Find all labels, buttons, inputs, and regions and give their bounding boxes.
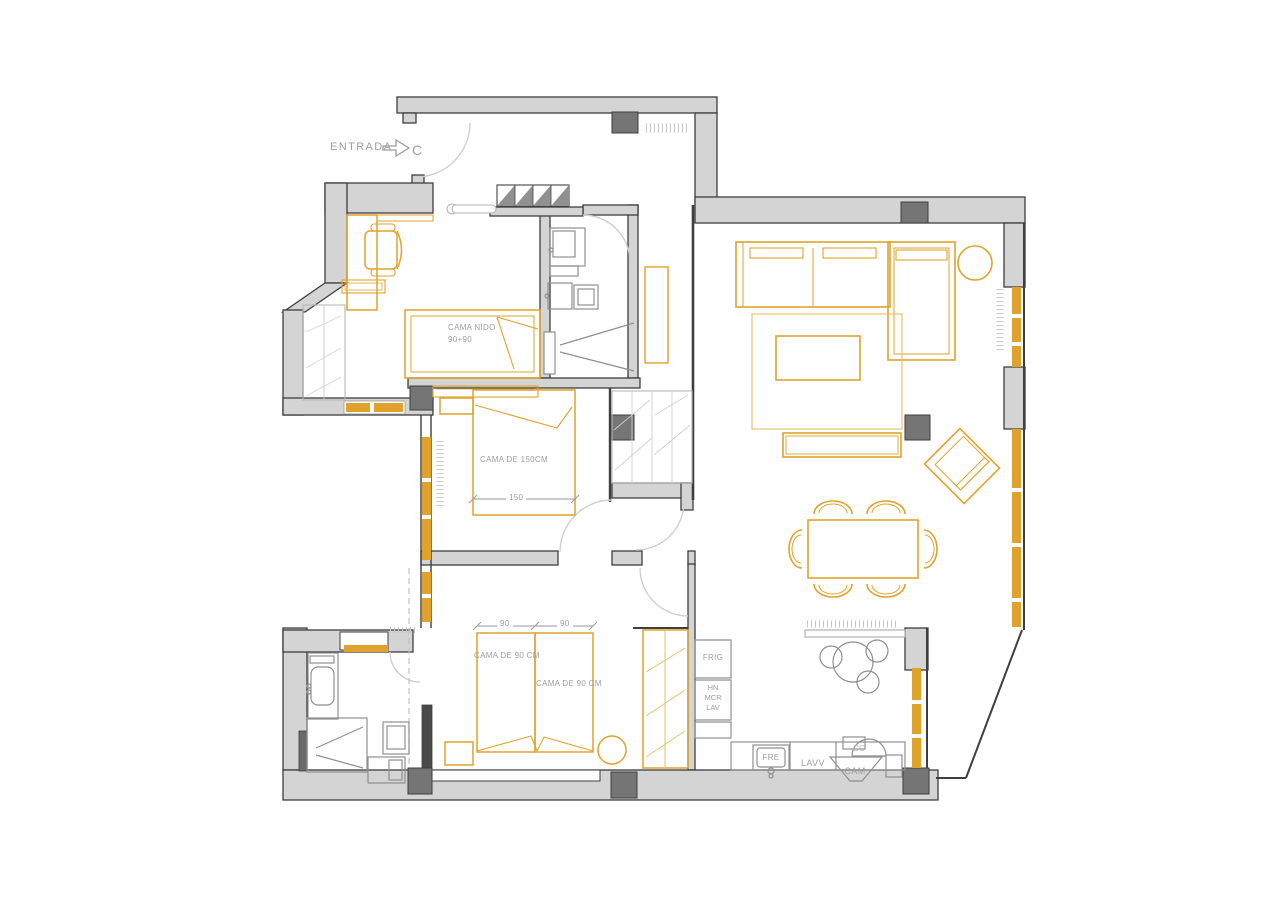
rug <box>752 314 902 429</box>
dining-chair <box>814 501 852 514</box>
dining-chair <box>867 584 905 597</box>
nest-bed-label-line1: CAMA NIDO <box>448 323 496 333</box>
bed90-dimension-left: 90 <box>497 619 513 629</box>
nightstand <box>440 398 473 414</box>
hob-label: CC <box>853 744 865 754</box>
dining-chair <box>867 501 905 514</box>
floor-plan-drawing <box>0 0 1280 904</box>
bed-90-right <box>535 633 593 752</box>
entry-hatched-closet <box>497 185 569 206</box>
sofa <box>736 242 955 360</box>
dishwasher-label: LAVV <box>790 758 836 769</box>
desk <box>347 215 377 310</box>
dim-90 <box>473 622 597 630</box>
round-table <box>598 736 626 764</box>
bed90-left-label: CAMA DE 90 CM <box>474 651 540 661</box>
dining-chair <box>789 530 802 568</box>
bathroom2-fixtures <box>307 653 409 783</box>
coffee-table <box>776 336 860 380</box>
dining-chair <box>814 584 852 597</box>
floor-plan: ENTRADA C CAMA NIDO 90+90 CAMA DE 150CM … <box>0 0 1280 904</box>
dining-chair <box>924 530 937 568</box>
bedroom150-furniture <box>433 386 575 515</box>
bed90-dimension-right: 90 <box>557 619 573 629</box>
hall-cabinet <box>645 267 668 363</box>
wardrobe <box>643 630 688 768</box>
bar-counter <box>805 630 905 637</box>
tv-bench <box>783 433 901 457</box>
radiator <box>342 280 385 293</box>
stool <box>820 646 842 668</box>
washer-label: LAV <box>695 703 731 713</box>
sink-unit-label: FRE <box>753 753 789 763</box>
bed90-right-label: CAMA DE 90 CM <box>536 679 602 689</box>
hood-label: CAM <box>840 766 870 777</box>
fridge-label: FRIG <box>695 653 731 663</box>
stool <box>857 671 879 693</box>
desk-shelf <box>377 215 433 221</box>
nursery-walkin-closet <box>303 305 345 400</box>
microwave-label: MCR <box>695 693 731 703</box>
oven-label: HN <box>695 683 731 693</box>
windows <box>340 287 1021 781</box>
entrance-label: ENTRADA <box>330 141 392 155</box>
bed150-dimension: 150 <box>506 493 526 503</box>
dining-table <box>808 520 918 578</box>
nest-bed-label-line2: 90+90 <box>448 335 472 345</box>
nightstand <box>445 742 473 765</box>
living-room-furniture <box>736 242 999 597</box>
nursery-furniture <box>342 215 540 378</box>
armchair <box>925 429 1000 504</box>
bed150-label: CAMA DE 150CM <box>468 455 560 465</box>
nest-bed <box>405 310 540 378</box>
entry-track <box>447 204 496 214</box>
dark-partitions <box>299 705 432 771</box>
desk-chair <box>365 224 402 276</box>
side-table <box>958 246 992 280</box>
bathroom1-fixtures <box>544 228 634 374</box>
entrance-door-letter: C <box>412 142 422 160</box>
appliance-tower-label: HN MCR LAV <box>695 683 731 713</box>
